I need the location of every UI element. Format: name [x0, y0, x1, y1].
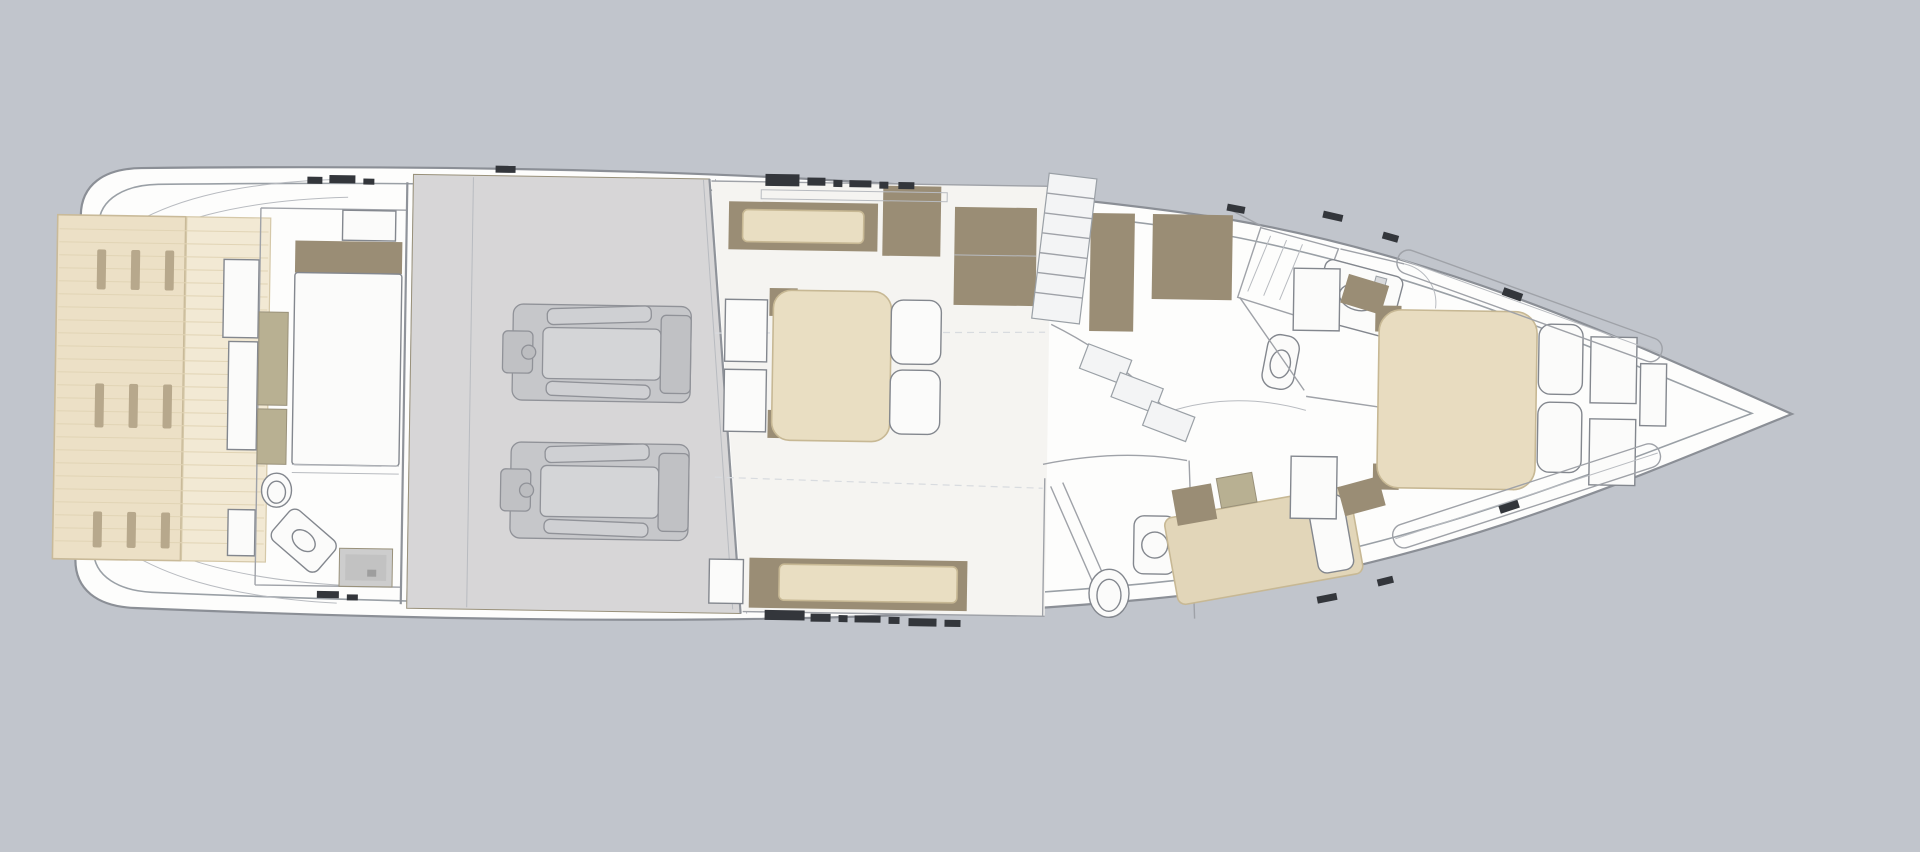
port-engine [502, 303, 691, 402]
guest-cabinet [1172, 483, 1218, 525]
yacht-floor-plan [0, 0, 1920, 852]
vip-berth [1377, 310, 1538, 490]
crew-headboard [295, 240, 402, 274]
crew-wardrobe [257, 312, 288, 464]
swim-platform [52, 215, 270, 562]
crew-shower [339, 548, 393, 587]
wardrobe-aft [882, 186, 941, 257]
deck-hatch [342, 210, 395, 241]
corridor-wardrobe [1089, 213, 1135, 332]
master-berth [771, 290, 891, 442]
wardrobe-entry [954, 207, 1038, 306]
engine-room [407, 174, 754, 613]
sofa-cushion-starboard [779, 564, 958, 603]
guest-shelf [1216, 472, 1257, 508]
forward-wardrobe [1152, 214, 1233, 300]
crew-berth [292, 272, 402, 466]
bow-locker [1640, 364, 1667, 426]
yacht-deck-plan-image [0, 0, 1920, 852]
crew-toilet [261, 473, 292, 507]
sofa-cushion-port [742, 210, 863, 244]
day-head-toilet [1089, 569, 1130, 618]
starboard-engine [500, 441, 689, 540]
